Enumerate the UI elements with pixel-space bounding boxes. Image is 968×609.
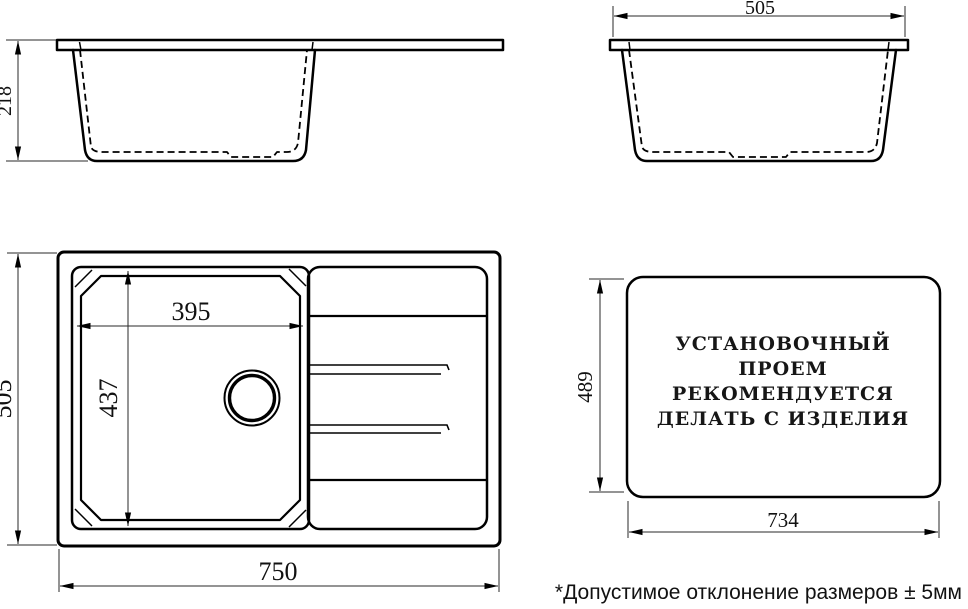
drainboard-groove-2a <box>309 425 449 430</box>
front-rim-tick-right <box>888 42 889 50</box>
tolerance-footnote: *Допустимое отклонение размеров ± 5мм <box>555 581 962 604</box>
drainboard-edge <box>308 267 487 529</box>
front-bowl-outer-wall <box>622 50 896 161</box>
side-section-view: 218 <box>0 40 503 161</box>
cutout-height-dim-label: 489 <box>573 371 597 403</box>
bowl-corner-bevel-br <box>289 510 306 527</box>
bowl-width-dim-label: 437 <box>94 379 123 418</box>
front-rim-tick-left <box>629 42 630 50</box>
front-bowl-inner-wall-hidden <box>629 50 888 157</box>
side-rim <box>57 40 503 50</box>
cutout-width-dim-label: 734 <box>767 508 799 532</box>
sink-drawing-sheet: 218 505 395 <box>0 0 968 609</box>
side-bowl-outer-wall <box>73 50 315 161</box>
cutout-view: УСТАНОВОЧНЫЙ ПРОЕМ РЕКОМЕНДУЕТСЯ ДЕЛАТЬ … <box>573 277 940 538</box>
drain-outer-ring <box>225 371 280 426</box>
bowl-corner-bevel-bl <box>75 509 92 526</box>
front-width-dim-label: 505 <box>745 0 775 19</box>
technical-drawing-canvas: 218 505 395 <box>0 0 968 609</box>
drain-inner-ring <box>230 376 275 421</box>
cutout-note-line2: ПРОЕМ <box>738 358 827 380</box>
side-bowl-inner-wall-hidden <box>80 50 307 157</box>
side-depth-dim-label: 218 <box>0 86 16 116</box>
front-rim <box>610 40 908 50</box>
drainboard-groove-1a <box>309 365 449 370</box>
cutout-note-line3: РЕКОМЕНДУЕТСЯ <box>672 383 894 405</box>
plan-view: 395 437 505 750 <box>0 252 500 592</box>
cutout-note-line1: УСТАНОВОЧНЫЙ <box>675 331 890 355</box>
bowl-length-dim-label: 395 <box>172 297 211 326</box>
front-section-view: 505 <box>610 0 908 161</box>
plan-length-dim-label: 750 <box>259 557 298 586</box>
plan-width-dim-label: 505 <box>0 380 17 419</box>
side-rim-tick-right <box>312 42 313 50</box>
bowl-corner-bevel-tl <box>75 270 92 287</box>
cutout-note-line4: ДЕЛАТЬ С ИЗДЕЛИЯ <box>657 408 909 430</box>
bowl-corner-bevel-tr <box>289 269 306 286</box>
